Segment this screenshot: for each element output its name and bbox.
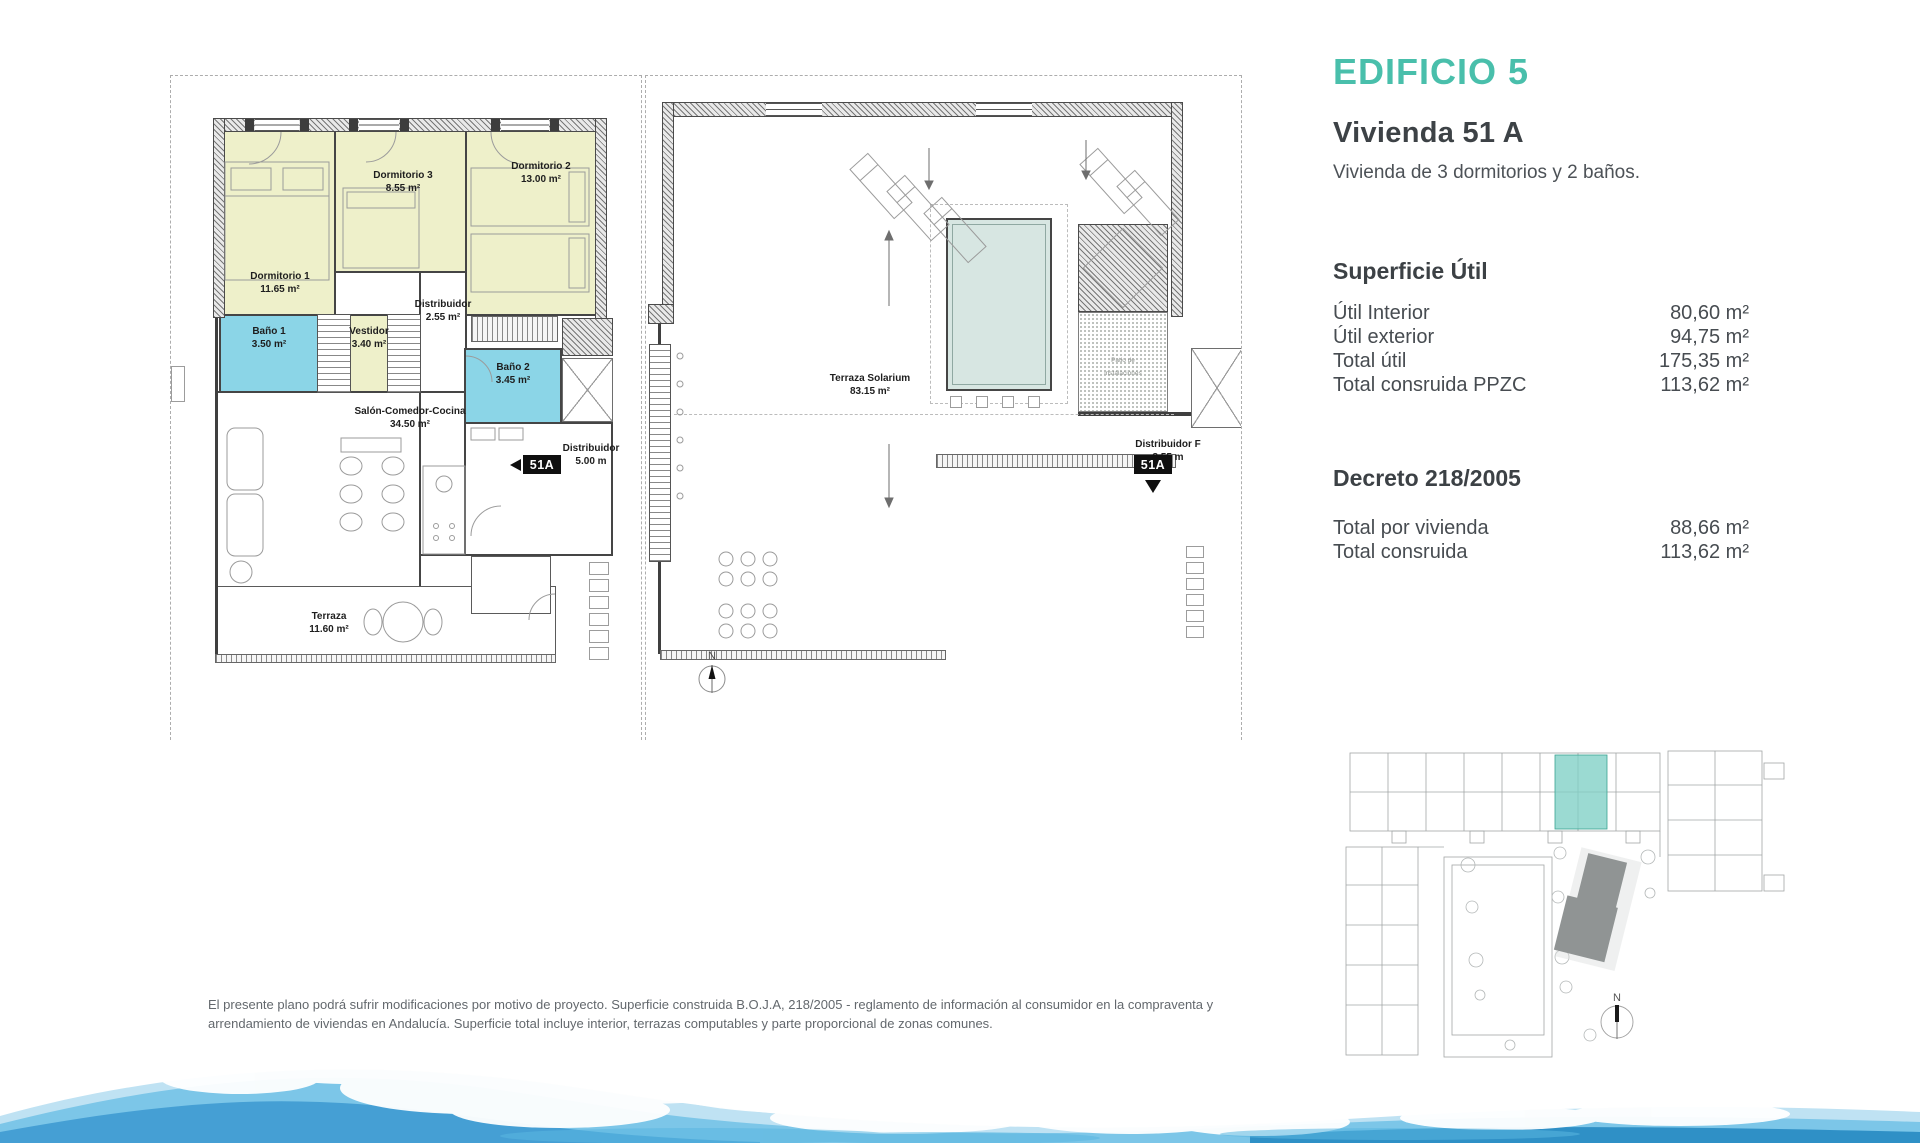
table-row: Útil Interior 80,60 m² (1333, 301, 1749, 325)
brochure-page: Dormitorio 1 11.65 m² Dormitorio 3 8.55 … (0, 0, 1920, 1143)
room-label-dormitorio-2: Dormitorio 2 13.00 m² (511, 161, 570, 186)
unit-title: Vivienda 51 A (1333, 117, 1749, 150)
table-row: Total consruida PPZC 113,62 m² (1333, 373, 1749, 397)
svg-text:N: N (1613, 992, 1621, 1004)
window (255, 119, 299, 131)
lintel (400, 119, 409, 131)
lintel (349, 119, 358, 131)
room-label-vestidor: Vestidor 3.40 m² (349, 326, 388, 351)
room-label-distribuidor: Distribuidor 2.55 m² (415, 299, 472, 324)
ocean-wave-image (0, 1058, 1920, 1143)
unit-subtitle: Vivienda de 3 dormitorios y 2 baños. (1333, 162, 1749, 184)
room-label-salon: Salón-Comedor-Cocina 34.50 m² (354, 406, 465, 431)
info-panel: EDIFICIO 5 Vivienda 51 A Vivienda de 3 d… (1333, 53, 1749, 564)
row-value: 88,66 m² (1670, 516, 1749, 540)
compass-icon: N (696, 648, 728, 698)
roof-window (976, 103, 1032, 116)
patio-label: Patio de instalaciones (1104, 354, 1142, 379)
superficie-table: Útil Interior 80,60 m² Útil exterior 94,… (1333, 301, 1749, 397)
decreto-table: Total por vivienda 88,66 m² Total consru… (1333, 516, 1749, 564)
row-label: Total consruida PPZC (1333, 373, 1526, 397)
row-value: 94,75 m² (1670, 325, 1749, 349)
row-label: Total por vivienda (1333, 516, 1489, 540)
room-label-terraza: Terraza 11.60 m² (309, 611, 348, 636)
unit-pointer-icon (510, 459, 521, 471)
row-value: 113,62 m² (1660, 540, 1749, 564)
room-label-dormitorio-1: Dormitorio 1 11.65 m² (250, 271, 309, 296)
superficie-heading: Superficie Útil (1333, 258, 1749, 284)
lintel (245, 119, 254, 131)
lintel (300, 119, 309, 131)
room-label-dormitorio-3: Dormitorio 3 8.55 m² (373, 170, 432, 195)
row-value: 175,35 m² (1659, 349, 1749, 373)
table-row: Total por vivienda 88,66 m² (1333, 516, 1749, 540)
unit-pointer-icon (1145, 480, 1161, 493)
row-label: Útil Interior (1333, 301, 1430, 325)
row-label: Total consruida (1333, 540, 1468, 564)
floor-plan-apartment: Dormitorio 1 11.65 m² Dormitorio 3 8.55 … (170, 75, 642, 740)
table-row: Total consruida 113,62 m² (1333, 540, 1749, 564)
window (501, 119, 549, 131)
row-label: Útil exterior (1333, 325, 1434, 349)
site-plan: N (1330, 735, 1790, 1065)
room-label-bano-1: Baño 1 3.50 m² (252, 326, 286, 351)
lintel (491, 119, 500, 131)
row-value: 113,62 m² (1660, 373, 1749, 397)
row-label: Total útil (1333, 349, 1406, 373)
room-label-bano-2: Baño 2 3.45 m² (496, 362, 530, 387)
table-row: Total útil 175,35 m² (1333, 349, 1749, 373)
unit-badge: 51A (1134, 455, 1172, 474)
row-value: 80,60 m² (1670, 301, 1749, 325)
solarium-label: Terraza Solarium 83.15 m² (830, 373, 910, 398)
site-plan-drawing: N (1330, 735, 1790, 1065)
site-compass-icon: N (1601, 992, 1633, 1039)
building-title: EDIFICIO 5 (1333, 53, 1749, 91)
unit-badge: 51A (523, 455, 561, 474)
roof-furniture (646, 76, 1242, 740)
lintel (550, 119, 559, 131)
window (359, 119, 399, 131)
unit-highlight (1555, 755, 1607, 829)
svg-text:N: N (708, 650, 716, 662)
room-label-hall: Distribuidor 5.00 m (563, 443, 620, 468)
floor-plan-roof: Patio de instalaciones (645, 75, 1242, 740)
decreto-heading: Decreto 218/2005 (1333, 465, 1749, 491)
roof-window (766, 103, 822, 116)
disclaimer-text: El presente plano podrá sufrir modificac… (208, 996, 1213, 1033)
table-row: Útil exterior 94,75 m² (1333, 325, 1749, 349)
